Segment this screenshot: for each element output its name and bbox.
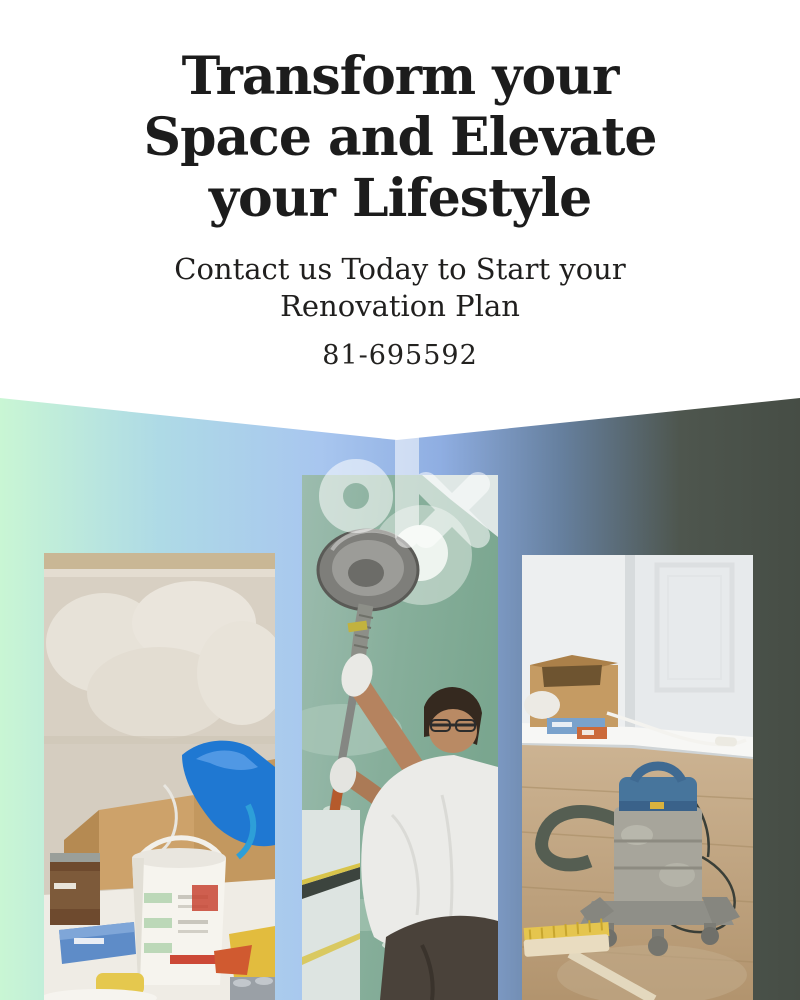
subtitle-line-1: Contact us Today to Start your bbox=[0, 251, 800, 288]
phone-number: 81-695592 bbox=[0, 340, 800, 371]
headline-line-1: Transform your bbox=[0, 46, 800, 107]
photo-renovation-supplies bbox=[44, 553, 275, 1000]
renovation-flyer: Transform your Space and Elevate your Li… bbox=[0, 0, 800, 1000]
olx-watermark-logo: olx bbox=[314, 418, 504, 553]
headline-line-2: Space and Elevate bbox=[0, 107, 800, 168]
subtitle-line-2: Renovation Plan bbox=[0, 288, 800, 325]
header-block: Transform your Space and Elevate your Li… bbox=[0, 0, 800, 371]
headline-line-3: your Lifestyle bbox=[0, 168, 800, 229]
photo-ceiling-sanding bbox=[302, 475, 498, 1000]
headline: Transform your Space and Elevate your Li… bbox=[0, 46, 800, 229]
photo-shop-vacuum bbox=[522, 555, 753, 1000]
subtitle: Contact us Today to Start your Renovatio… bbox=[0, 251, 800, 325]
